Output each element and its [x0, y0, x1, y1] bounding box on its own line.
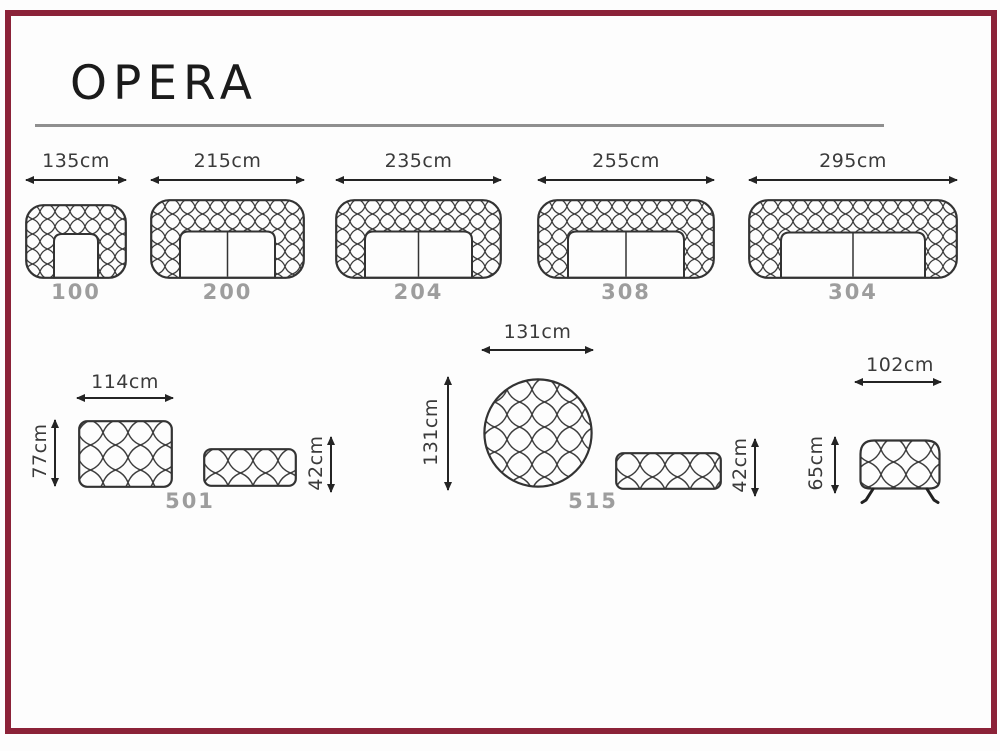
- catalog-page: OPERA 135cm 100 215cm 200 235cm 204 255c: [0, 0, 1000, 751]
- armchair-bench-group: 102cm 65cm: [0, 0, 1000, 751]
- bench-right-leg: [927, 489, 938, 503]
- width-dimension-arrow: [855, 381, 941, 383]
- height-dimension-label: 65cm: [805, 423, 827, 503]
- height-dimension-arrow: [834, 437, 836, 493]
- width-dimension-label: 102cm: [855, 354, 945, 376]
- armchair-bench-frontview-drawing: [856, 437, 944, 505]
- bench-left-leg: [862, 489, 873, 503]
